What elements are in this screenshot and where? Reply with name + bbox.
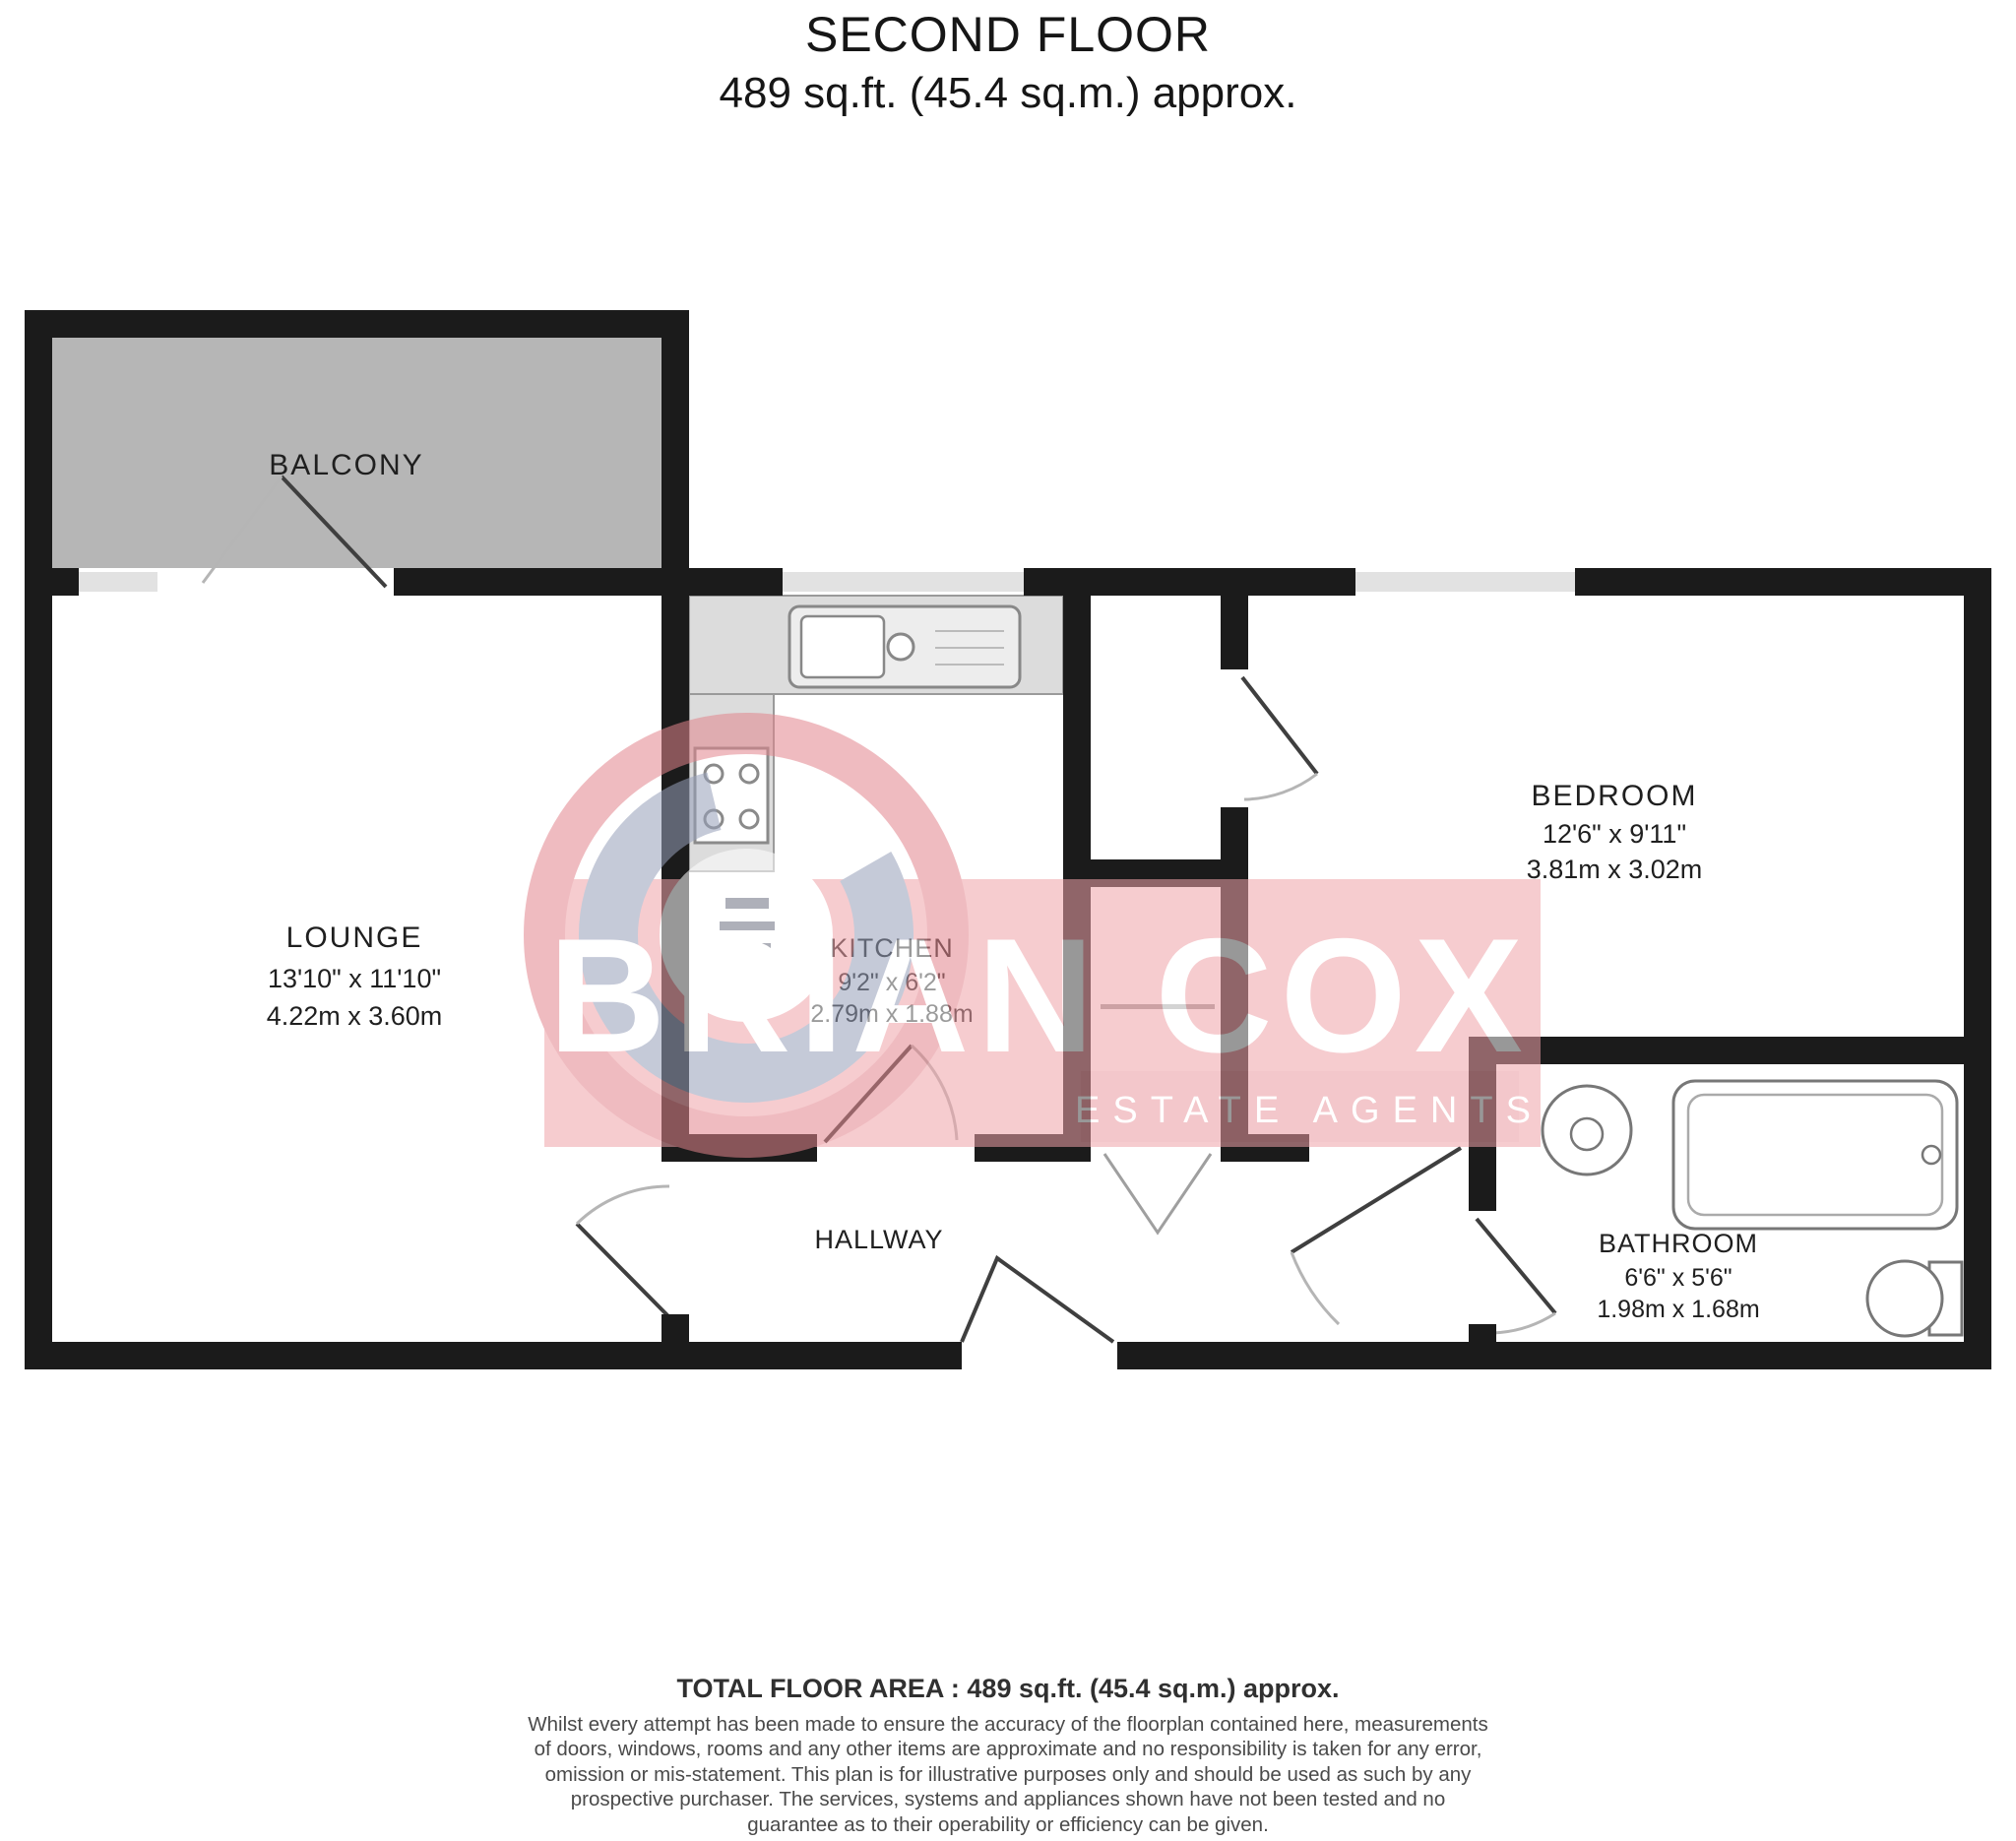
wall xyxy=(1221,596,1248,669)
entrance-door-leaves xyxy=(962,1258,1113,1342)
watermark-tagline-text: ESTATE AGENTS xyxy=(1075,1090,1543,1131)
bedroom-dims-imperial: 12'6" x 9'11" xyxy=(1543,819,1686,849)
disclaimer-text: Whilst every attempt has been made to en… xyxy=(526,1712,1490,1837)
wardrobe-door-arc xyxy=(1244,774,1317,799)
floor-area: 489 sq.ft. (45.4 sq.m.) approx. xyxy=(0,69,2016,118)
hallway-label: HALLWAY xyxy=(814,1225,943,1254)
bedroom-label: BEDROOM xyxy=(1531,780,1697,812)
bedroom-window xyxy=(1355,572,1575,592)
watermark-brand-text: BRIAN COX xyxy=(548,905,1531,1086)
wardrobe-door-leaf xyxy=(1242,677,1317,774)
watermark: BRIAN COX ESTATE AGENTS xyxy=(544,733,1543,1147)
kitchen-window xyxy=(783,572,1024,592)
bedroom-dims-metric: 3.81m x 3.02m xyxy=(1527,855,1703,884)
bedroom-door-arc xyxy=(1291,1252,1339,1324)
lounge-dims-imperial: 13'10" x 11'10" xyxy=(268,964,441,993)
bath-tap-icon xyxy=(1922,1146,1940,1164)
sink-drain-icon xyxy=(888,634,913,660)
wall xyxy=(25,310,52,1369)
lounge-label: LOUNGE xyxy=(286,921,423,954)
plan-title: SECOND FLOOR 489 sq.ft. (45.4 sq.m.) app… xyxy=(0,6,2016,118)
wall xyxy=(1117,1342,1991,1369)
wall xyxy=(1469,1037,1991,1064)
wall xyxy=(25,1342,962,1369)
wall xyxy=(1469,1324,1496,1342)
washbasin-icon xyxy=(1543,1086,1631,1174)
total-floor-area: TOTAL FLOOR AREA : 489 sq.ft. (45.4 sq.m… xyxy=(526,1674,1490,1704)
plan-footer: TOTAL FLOOR AREA : 489 sq.ft. (45.4 sq.m… xyxy=(526,1674,1490,1841)
lounge-dims-metric: 4.22m x 3.60m xyxy=(267,1001,443,1031)
lounge-door-leaf xyxy=(577,1224,669,1317)
floorplan-page: BALCONY LOUNGE 13'10" x 11'10" 4.22m x 3… xyxy=(0,0,2016,1841)
wall xyxy=(661,1314,689,1342)
bathroom-dims-metric: 1.98m x 1.68m xyxy=(1597,1296,1759,1323)
bathtub-icon xyxy=(1673,1081,1957,1229)
wall xyxy=(1575,568,1991,596)
floor-name: SECOND FLOOR xyxy=(0,6,2016,63)
sink-bowl-icon xyxy=(801,616,884,677)
wall xyxy=(25,310,689,338)
lounge-door-arc xyxy=(577,1186,669,1224)
balcony-window xyxy=(79,572,157,592)
toilet-bowl-icon xyxy=(1867,1261,1942,1336)
bathroom-door-arc xyxy=(1488,1313,1555,1333)
bedroom-door-leaf xyxy=(1291,1148,1461,1252)
bathroom-door-leaf xyxy=(1477,1219,1555,1313)
wall xyxy=(1964,568,1991,1369)
bathroom-dims-imperial: 6'6" x 5'6" xyxy=(1624,1264,1732,1292)
bathroom-label: BATHROOM xyxy=(1599,1229,1758,1258)
balcony-label: BALCONY xyxy=(269,449,423,481)
floorplan-drawing: BALCONY LOUNGE 13'10" x 11'10" 4.22m x 3… xyxy=(0,0,2016,1841)
cupboard-door-leaves xyxy=(1104,1154,1211,1233)
wall xyxy=(394,568,783,596)
wall xyxy=(1024,568,1355,596)
